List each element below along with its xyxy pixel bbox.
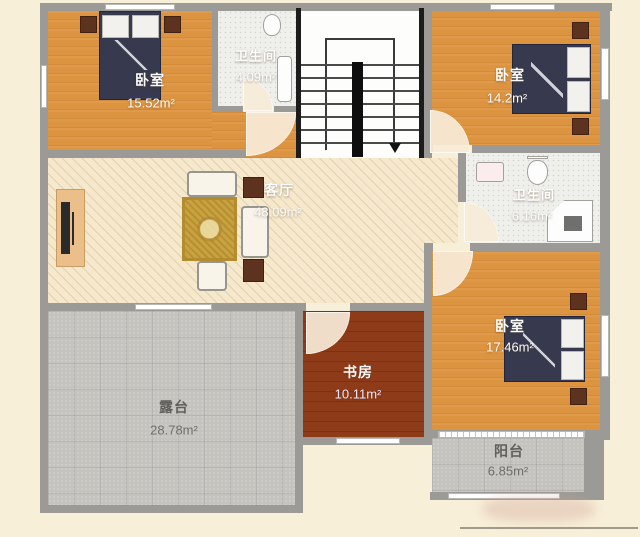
room-area-terrace: 28.78m² <box>150 423 198 438</box>
floor-plan: 卧室 15.52m² 卫生间 4.09m² 卧室 14.2m² 客厅 48.09… <box>0 0 640 537</box>
tv-icon <box>61 202 70 254</box>
wall-bathmid-left <box>458 153 466 202</box>
armchair <box>197 261 227 291</box>
window-bedbr-right <box>601 315 609 377</box>
nightstand <box>80 16 97 33</box>
pillow <box>561 351 584 380</box>
wall-stair-left <box>296 8 301 158</box>
wall-outer-bottom <box>40 505 303 513</box>
window-terrace-top <box>135 304 212 310</box>
pillow <box>102 15 129 38</box>
pillow <box>567 47 590 78</box>
stair-center-rail <box>352 62 363 157</box>
side-table <box>243 259 264 282</box>
nightstand <box>572 118 589 135</box>
photo-edge-line <box>460 527 638 529</box>
room-label-bathroom-mid: 卫生间 <box>513 185 555 204</box>
pillow <box>132 15 159 38</box>
pillow <box>567 81 590 112</box>
nightstand <box>164 16 181 33</box>
room-area-bedroom-top-left: 15.52m² <box>127 96 175 111</box>
room-area-study: 10.11m² <box>335 387 382 402</box>
wall-bathtop-left <box>212 10 218 112</box>
nightstand <box>572 22 589 39</box>
room-label-balcony: 阳台 <box>494 441 524 461</box>
rug <box>182 197 237 261</box>
side-table <box>243 177 264 198</box>
room-label-bedroom-top-right: 卧室 <box>495 65 525 85</box>
room-label-bathroom-top: 卫生间 <box>235 46 277 65</box>
window-bedtl-top <box>105 4 175 10</box>
window-bedbr-bottom <box>438 431 585 438</box>
blanket-fold <box>100 40 162 70</box>
window-bedtr-top <box>490 4 555 10</box>
room-area-bedroom-top-right: 14.2m² <box>487 91 527 106</box>
stair-direction-arrow-icon <box>389 143 401 153</box>
wall-bedbr-left <box>424 251 432 438</box>
room-area-bathroom-top: 4.09m² <box>236 70 276 85</box>
watermark-smudge <box>483 496 595 522</box>
room-area-living: 48.09m² <box>254 205 302 220</box>
toilet-tank-line <box>527 156 548 159</box>
room-area-balcony: 6.85m² <box>488 464 528 479</box>
wall-terrace-right <box>295 311 303 505</box>
room-label-bedroom-top-left: 卧室 <box>135 70 165 90</box>
window-bedtl-left <box>41 65 47 108</box>
wall-bedtl-bottom <box>48 150 246 158</box>
room-living-extension <box>424 158 458 243</box>
toilet-icon <box>527 160 548 185</box>
room-area-bedroom-bottom-right: 17.46m² <box>486 340 534 355</box>
pillow <box>561 319 584 348</box>
wall-bathmid-bottom <box>470 243 600 251</box>
room-label-bedroom-bottom-right: 卧室 <box>495 316 525 336</box>
nightstand <box>570 293 587 310</box>
room-label-living: 客厅 <box>264 180 294 200</box>
toilet-icon <box>263 14 281 36</box>
bathtub-icon <box>277 56 292 102</box>
blanket-fold <box>531 45 563 115</box>
wall-balcony-right <box>584 430 604 500</box>
room-area-bathroom-mid: 6.16m² <box>512 209 552 224</box>
room-label-terrace: 露台 <box>159 397 189 417</box>
room-label-study: 书房 <box>343 362 373 382</box>
wall-living-bottom-b <box>350 303 432 311</box>
sofa-three-seat <box>187 171 237 197</box>
wall-bathtop-bottom-a <box>212 106 243 112</box>
wall-bedtr-bottom <box>472 145 600 153</box>
sink-icon <box>476 162 504 182</box>
window-study-bottom <box>336 438 400 444</box>
shower-head-icon <box>564 216 582 231</box>
tv-stand-line <box>72 212 74 245</box>
wall-bathmid-bottom-stub <box>424 243 433 251</box>
nightstand <box>570 388 587 405</box>
window-bedtr-right <box>601 48 609 100</box>
